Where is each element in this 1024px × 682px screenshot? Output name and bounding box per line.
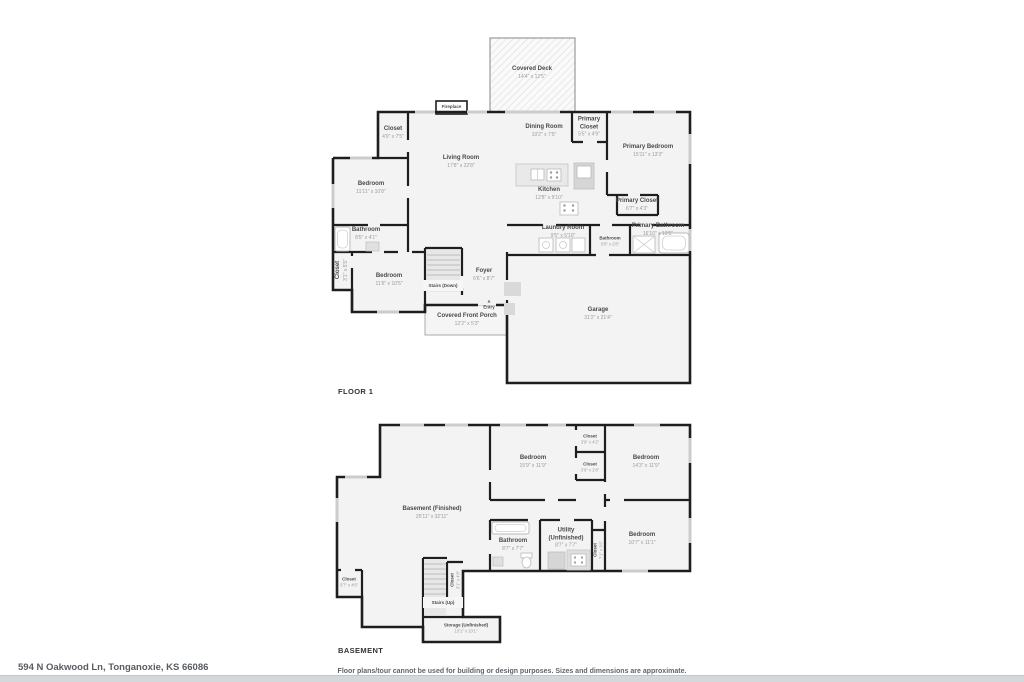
floorplan-canvas: Covered Deck 14'4" x 12'5" Fireplace Clo… <box>0 0 1024 682</box>
utility-fixtures <box>548 550 590 570</box>
stairs-up-treads <box>424 564 446 594</box>
dryer-icon <box>556 238 570 252</box>
basement-sink-icon <box>493 557 503 566</box>
laundry-fixtures <box>539 238 585 252</box>
stove-icon <box>560 202 578 215</box>
vanity-icon <box>366 242 379 251</box>
covered-deck-area <box>490 38 575 112</box>
garage-step <box>504 303 515 315</box>
stairs-up-label-bg <box>423 597 463 608</box>
front-porch-area <box>425 305 509 335</box>
basement-plan <box>337 425 690 642</box>
primary-bathroom-fixtures <box>633 233 689 253</box>
basement-tub-icon <box>492 522 529 534</box>
floor1-plan <box>333 38 690 383</box>
kitchen-cooktop-icon <box>547 169 561 181</box>
fridge-icon <box>577 166 591 178</box>
garage-step <box>504 282 521 296</box>
washer-icon <box>539 238 553 252</box>
floorplan-drawing <box>0 0 1024 682</box>
basement-title: BASEMENT <box>338 646 383 655</box>
stairs-down-label-bg <box>423 280 463 291</box>
floor1-title: FLOOR 1 <box>338 387 373 396</box>
laundry-sink-icon <box>572 238 585 252</box>
bottom-bar <box>0 675 1024 682</box>
disclaimer-text: Floor plans/tour cannot be used for buil… <box>0 668 1024 675</box>
water-heater-icon <box>548 552 565 569</box>
